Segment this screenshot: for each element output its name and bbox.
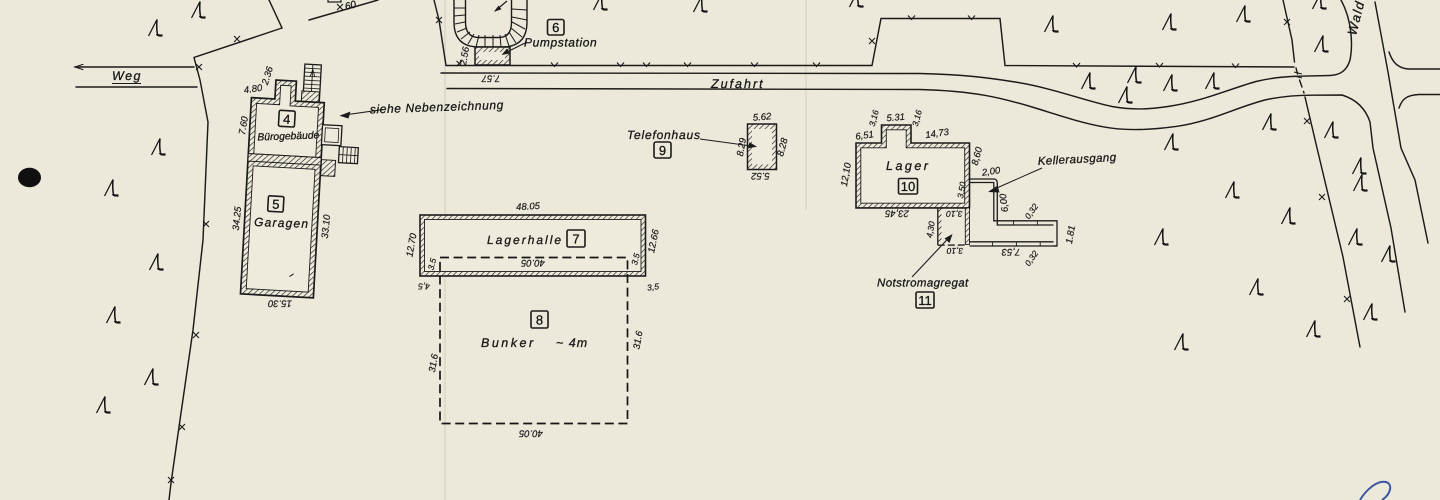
svg-text:Notstromagregat: Notstromagregat	[877, 278, 969, 290]
svg-text:7.57: 7.57	[481, 73, 500, 84]
svg-text:9: 9	[659, 143, 666, 158]
svg-text:Bürogebäude: Bürogebäude	[257, 130, 319, 143]
svg-text:Lager: Lager	[886, 159, 930, 173]
svg-text:48.05: 48.05	[516, 201, 541, 213]
svg-text:Zufahrt: Zufahrt	[710, 77, 765, 91]
svg-text:Bunker: Bunker	[481, 336, 536, 350]
svg-text:6,00: 6,00	[998, 192, 1011, 212]
svg-text:~ 4m: ~ 4m	[556, 336, 588, 350]
svg-text:3,10: 3,10	[946, 209, 963, 219]
svg-text:40.05: 40.05	[518, 428, 542, 439]
svg-text:Lagerhalle: Lagerhalle	[487, 233, 563, 247]
svg-text:4: 4	[283, 111, 291, 126]
svg-text:7: 7	[572, 232, 579, 247]
svg-text:23,45: 23,45	[884, 208, 909, 219]
svg-text:6: 6	[552, 20, 559, 35]
svg-text:5.62: 5.62	[752, 111, 772, 124]
svg-text:5: 5	[272, 196, 280, 211]
svg-text:5.52: 5.52	[751, 170, 770, 181]
svg-text:Garagen: Garagen	[254, 215, 310, 231]
svg-text:4,5: 4,5	[418, 282, 430, 292]
svg-text:11: 11	[918, 293, 932, 308]
svg-text:8: 8	[536, 313, 543, 328]
svg-text:7,53: 7,53	[1001, 246, 1020, 257]
svg-text:5.31: 5.31	[886, 112, 905, 125]
svg-text:Weg: Weg	[112, 69, 142, 83]
svg-text:3,10: 3,10	[946, 246, 963, 256]
svg-text:3,5: 3,5	[646, 281, 659, 293]
svg-text:15.30: 15.30	[267, 298, 291, 309]
svg-text:40.05: 40.05	[520, 257, 544, 268]
svg-text:10: 10	[901, 179, 915, 194]
svg-text:Telefonhaus: Telefonhaus	[627, 128, 701, 142]
svg-text:Pumpstation: Pumpstation	[524, 36, 597, 50]
